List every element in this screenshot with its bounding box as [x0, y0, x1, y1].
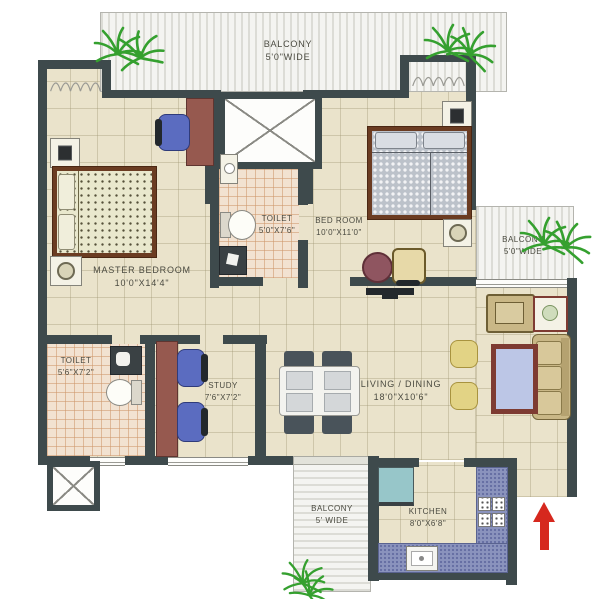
ledge-arcs-topleft: [47, 68, 103, 98]
burner-icon: [492, 497, 505, 511]
plant-icon: [280, 542, 326, 596]
plant-table: [533, 296, 568, 332]
floor-plan: MASTER BEDROOM 10'0"X14'4" TOILET 5'0"X7…: [0, 0, 609, 599]
burner-icon: [478, 513, 491, 527]
entry-arrow-icon: [532, 502, 556, 552]
room-size: 5'0"WIDE: [264, 51, 313, 64]
sofa-cushion: [536, 341, 562, 365]
room-name: KITCHEN: [409, 506, 448, 518]
seat-cushion: [324, 371, 351, 390]
room-size: 7'6"X7'2": [205, 392, 241, 404]
sofa-cushion: [536, 366, 562, 390]
bedroom-chair: [392, 248, 426, 284]
stove: [478, 497, 505, 527]
wall-master-bottom-a: [38, 335, 112, 344]
room-size: 8'0"X6'8": [409, 518, 448, 530]
plant-icon: [100, 6, 152, 54]
burner-icon: [492, 513, 505, 527]
wall-toilet1-right-b: [298, 240, 308, 288]
room-name: TOILET: [259, 213, 295, 225]
study-chair: [177, 349, 205, 387]
study-label: STUDY 7'6"X7'2": [205, 380, 241, 404]
kitchen-label: KITCHEN 8'0"X6'8": [409, 506, 448, 530]
window-study: [168, 457, 248, 466]
burner-icon: [478, 497, 491, 511]
room-name: MASTER BEDROOM: [93, 264, 191, 277]
armchair-seat: [495, 302, 524, 324]
wc-toilet2: [106, 379, 142, 404]
wall-study-right: [255, 335, 266, 456]
pillow: [58, 174, 75, 210]
shower-tray: [219, 246, 247, 275]
seat-cushion: [286, 393, 313, 412]
wall-left: [38, 60, 47, 465]
room-size: 5'6"X7'2": [58, 367, 94, 379]
toilet2-label: TOILET 5'6"X7'2": [58, 355, 94, 379]
arrow-shaft: [540, 521, 549, 550]
room-name: STUDY: [205, 380, 241, 392]
washbasin-counter: [110, 346, 142, 375]
wall-kitchen-top-a: [368, 458, 419, 467]
basin-bowl: [224, 163, 235, 174]
kitchen-counter-horizontal: [378, 543, 508, 573]
room-size: 10'0"X11'0": [315, 227, 363, 239]
coffee-table: [491, 344, 538, 414]
room-name: BALCONY: [264, 38, 313, 51]
shower-drain: [226, 253, 239, 266]
master-desk-chair: [158, 114, 190, 151]
sofa-cushion: [536, 391, 562, 415]
wall-stub-topleft: [102, 60, 111, 98]
wc-toilet1: [220, 210, 254, 238]
blanket-seam: [430, 152, 431, 215]
study-chair: [177, 402, 205, 442]
chair-back: [201, 408, 208, 436]
basin-bowl: [116, 352, 130, 366]
plant-icon: [430, 4, 482, 50]
blanket-seam: [78, 171, 79, 253]
pouffe: [450, 382, 478, 410]
room-size: 5' WIDE: [311, 515, 353, 527]
toilet1-label: TOILET 5'0"X7'6": [259, 213, 295, 237]
master-bed: [52, 166, 157, 258]
master-bedroom-label: MASTER BEDROOM 10'0"X14'4": [93, 264, 191, 290]
wc-bowl: [228, 210, 256, 240]
armchair: [486, 294, 535, 333]
nightstand: [50, 138, 80, 168]
round-table: [362, 252, 393, 283]
pouffe: [450, 340, 478, 368]
wall-bottom-c: [248, 456, 293, 465]
room-size: 10'0"X14'4": [93, 277, 191, 290]
seat-cushion: [286, 371, 313, 390]
wall-toilet1-bottom: [215, 277, 263, 286]
plant-icon: [526, 200, 578, 244]
master-desk: [186, 98, 214, 166]
room-name: BALCONY: [311, 503, 353, 515]
living-dining-label: LIVING / DINING 18'0"X10'6": [361, 378, 442, 404]
wall-top-a: [111, 90, 221, 98]
fridge: [378, 467, 414, 506]
pillow: [58, 214, 75, 250]
blanket-seam: [372, 152, 467, 153]
room-name: TOILET: [58, 355, 94, 367]
wall-bottom-b: [125, 456, 168, 465]
round-lamp-icon: [449, 224, 467, 242]
sofa-back: [561, 338, 569, 416]
balcony-top-label: BALCONY 5'0"WIDE: [264, 38, 313, 64]
nightstand: [50, 256, 82, 286]
chair-back: [155, 119, 162, 146]
duct-x-box: [47, 461, 100, 511]
window-living-balcony: [476, 279, 567, 288]
bedroom-bed: [367, 126, 472, 220]
pillow: [375, 132, 417, 149]
wc-bowl: [106, 379, 134, 406]
wc-tank: [131, 380, 142, 405]
seat-cushion: [324, 393, 351, 412]
room-name: BED ROOM: [315, 215, 363, 227]
pillow: [423, 132, 465, 149]
dining-table: [279, 366, 360, 416]
nightstand: [443, 219, 472, 247]
tv-unit: [366, 288, 414, 295]
room-size: 5'0"X7'6": [259, 225, 295, 237]
room-name: LIVING / DINING: [361, 378, 442, 391]
study-desk: [156, 341, 178, 457]
arrow-head: [533, 502, 555, 522]
kitchen-sink: [406, 546, 438, 571]
faucet-icon: [419, 556, 424, 561]
chair-back: [396, 280, 420, 286]
tv-stand: [382, 295, 398, 299]
balcony-door-sill: [293, 456, 371, 465]
washbasin: [220, 154, 238, 184]
ledge-arcs-topright: [409, 61, 467, 94]
wall-toilet2-study: [145, 344, 155, 456]
bedroom-label: BED ROOM 10'0"X11'0": [315, 215, 363, 239]
round-lamp-icon: [57, 262, 75, 280]
table-lamp-icon: [450, 109, 464, 124]
potted-plant-icon: [542, 305, 558, 321]
chair-back: [201, 354, 208, 382]
room-size: 18'0"X10'6": [361, 391, 442, 404]
balcony-bottom-label: BALCONY 5' WIDE: [311, 503, 353, 527]
table-lamp-icon: [58, 146, 72, 161]
